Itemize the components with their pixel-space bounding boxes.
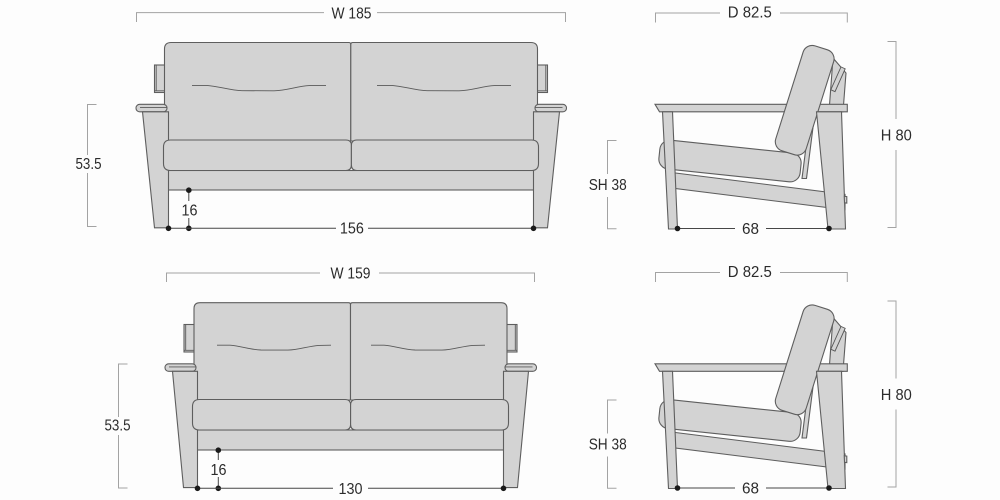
- svg-text:130: 130: [339, 481, 363, 498]
- svg-text:H 80: H 80: [881, 127, 912, 144]
- svg-text:SH 38: SH 38: [589, 177, 627, 194]
- svg-text:W 159: W 159: [331, 266, 371, 283]
- svg-text:53.5: 53.5: [76, 156, 102, 173]
- svg-text:SH 38: SH 38: [589, 436, 627, 453]
- svg-text:68: 68: [742, 221, 759, 238]
- svg-text:68: 68: [742, 481, 759, 498]
- svg-text:16: 16: [211, 462, 227, 479]
- svg-text:156: 156: [340, 221, 364, 238]
- svg-text:16: 16: [182, 202, 198, 219]
- svg-text:D 82.5: D 82.5: [728, 5, 772, 22]
- svg-text:53.5: 53.5: [105, 418, 131, 435]
- svg-text:W 185: W 185: [332, 5, 372, 22]
- svg-text:H 80: H 80: [881, 387, 912, 404]
- svg-text:D 82.5: D 82.5: [728, 264, 772, 281]
